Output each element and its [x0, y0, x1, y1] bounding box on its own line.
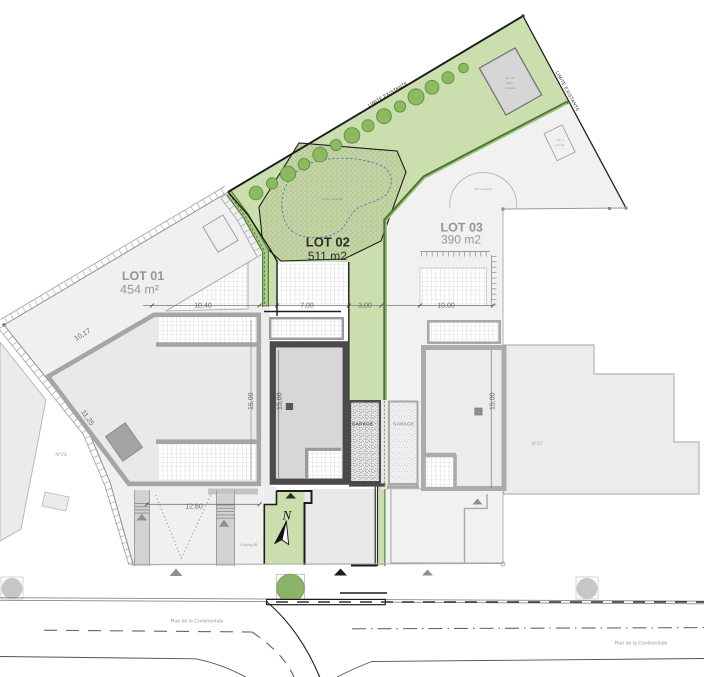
svg-text:3,00: 3,00: [358, 303, 372, 310]
svg-text:LOT 01: LOT 01: [122, 269, 164, 283]
svg-text:390 m2: 390 m2: [441, 233, 481, 247]
svg-text:Piscine naturelle: Piscine naturelle: [321, 197, 343, 201]
svg-text:511 m2: 511 m2: [308, 249, 347, 263]
svg-text:GARAGE: GARAGE: [393, 422, 414, 427]
svg-text:existant: existant: [505, 86, 516, 90]
svg-text:Rue de la Continentale: Rue de la Continentale: [615, 641, 668, 647]
svg-text:haie existante: haie existante: [474, 187, 493, 191]
svg-text:abri a: abri a: [557, 138, 564, 142]
svg-text:15,00: 15,00: [277, 392, 284, 410]
svg-text:N°27: N°27: [531, 441, 542, 447]
svg-text:jardin: jardin: [505, 81, 514, 85]
svg-text:15,00: 15,00: [490, 392, 497, 410]
svg-text:GARAGE: GARAGE: [352, 422, 373, 427]
svg-text:7,00: 7,00: [300, 303, 314, 310]
svg-text:N: N: [282, 508, 293, 523]
svg-text:Parking 85: Parking 85: [240, 543, 257, 547]
svg-text:Rue de la Continentale: Rue de la Continentale: [171, 619, 224, 625]
svg-text:10,00: 10,00: [437, 303, 455, 310]
svg-text:abri de: abri de: [505, 76, 515, 80]
svg-text:demolir: demolir: [555, 143, 564, 147]
svg-text:454 m²: 454 m²: [120, 283, 159, 297]
svg-text:N°23: N°23: [55, 452, 66, 458]
svg-text:LOT 02: LOT 02: [306, 235, 350, 250]
svg-text:12,60: 12,60: [185, 504, 203, 511]
svg-text:15,00: 15,00: [248, 392, 255, 410]
svg-text:10,40: 10,40: [194, 303, 212, 310]
